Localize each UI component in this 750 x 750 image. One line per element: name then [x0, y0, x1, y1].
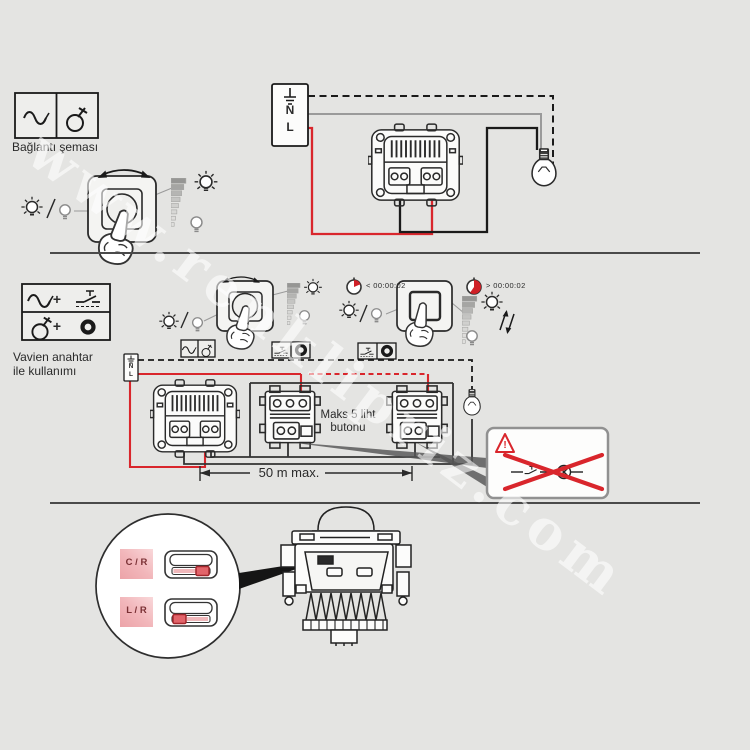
legend-plus-1: +: [50, 291, 64, 307]
max-buttons-note: Maks 5 liht butonu: [317, 409, 379, 435]
magnifier-circle: [96, 514, 240, 658]
up-down-arrows-icon: [500, 310, 514, 334]
terminal-l-label-small: L: [124, 371, 138, 378]
bulb-bright-icon: [481, 292, 502, 310]
terminal-n-label-small: N: [124, 363, 138, 370]
dimmer-mechanism: [150, 380, 240, 457]
terminal-l-label: L: [272, 121, 308, 135]
bulb-bright-icon: [304, 279, 322, 294]
legend-plus-2: +: [50, 318, 64, 334]
warning-box: [487, 428, 608, 498]
timer-long-label: > 00:00:02: [486, 282, 526, 291]
timer-short-icon: [347, 278, 361, 295]
bulb-dim-icon: [191, 217, 202, 231]
timer-short-label: < 00:00:02: [366, 282, 406, 291]
heat-sink-fins: [306, 593, 386, 620]
distance-label: 50 m max.: [250, 466, 328, 481]
instruction-sheet: Bağlantı şeması N L + + Vavien anahtar i…: [0, 0, 750, 750]
mini-legend-pushbutton-1: [272, 342, 310, 358]
mini-legend-pushbutton-2: [358, 343, 396, 359]
dim-level-bar: [171, 178, 186, 226]
bulb-dim-icon: [467, 331, 477, 345]
timer-long-icon: [467, 278, 481, 295]
section1-wiring-diagram: [272, 84, 556, 234]
selector-cr-label: C / R: [120, 558, 153, 569]
selector-lr-label: L / R: [120, 606, 153, 617]
cr-lr-selector: [318, 556, 333, 564]
section2-legend-box: [22, 284, 110, 340]
pushbutton-mechanism-2: [387, 386, 447, 448]
pushbutton-mechanism-1: [260, 386, 320, 448]
section3-device: [281, 507, 411, 646]
selector-slider-cr: [165, 551, 217, 578]
diagram-graphics: [0, 0, 750, 750]
bulb-off-icon: [372, 309, 382, 322]
bulb-on-icon: [21, 197, 42, 215]
selector-slider-lr: [165, 599, 217, 626]
bulb-on-icon: [159, 312, 178, 328]
section2-title: Vavien anahtar ile kullanımı: [13, 351, 93, 379]
bulb-on-icon: [339, 301, 358, 317]
section1-title: Bağlantı şeması: [12, 141, 98, 155]
section1-legend-box: [15, 93, 98, 138]
bulb-off-icon: [60, 205, 70, 219]
dim-level-bar: [287, 283, 300, 325]
bulb-dim-icon: [300, 311, 310, 324]
mini-legend-dimmer: [181, 340, 215, 357]
dimmer-mechanism: [368, 124, 463, 206]
bulb-bright-icon: [195, 171, 218, 190]
terminal-n-label: N: [272, 104, 308, 118]
light-bulb: [464, 390, 480, 415]
bulb-off-icon: [193, 318, 203, 331]
warning-exclamation: !: [499, 440, 511, 452]
